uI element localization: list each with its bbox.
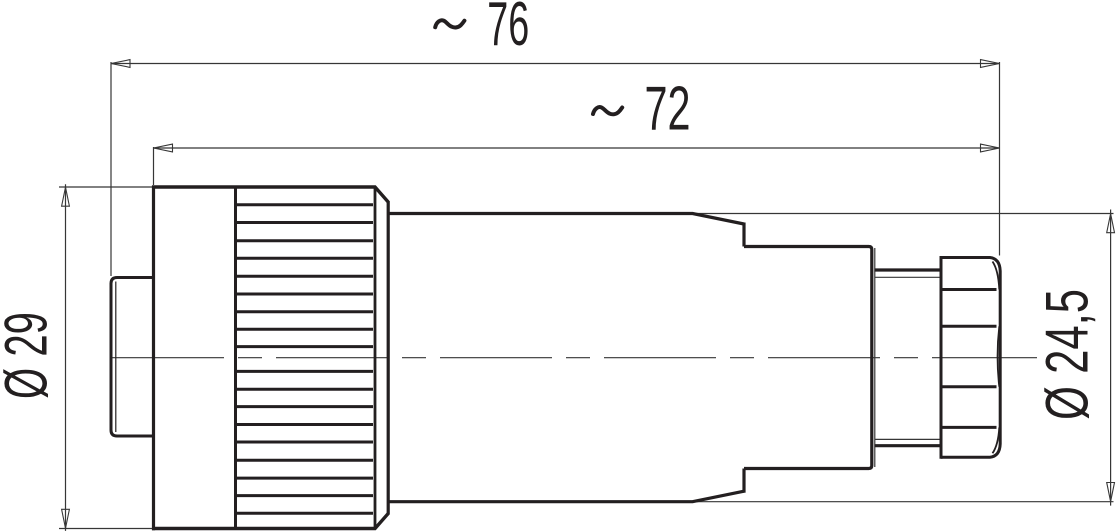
svg-text:76: 76 (487, 0, 529, 59)
svg-text:Ø 24,5: Ø 24,5 (1034, 289, 1101, 420)
svg-text:72: 72 (645, 74, 691, 143)
svg-text:Ø 29: Ø 29 (0, 312, 60, 399)
